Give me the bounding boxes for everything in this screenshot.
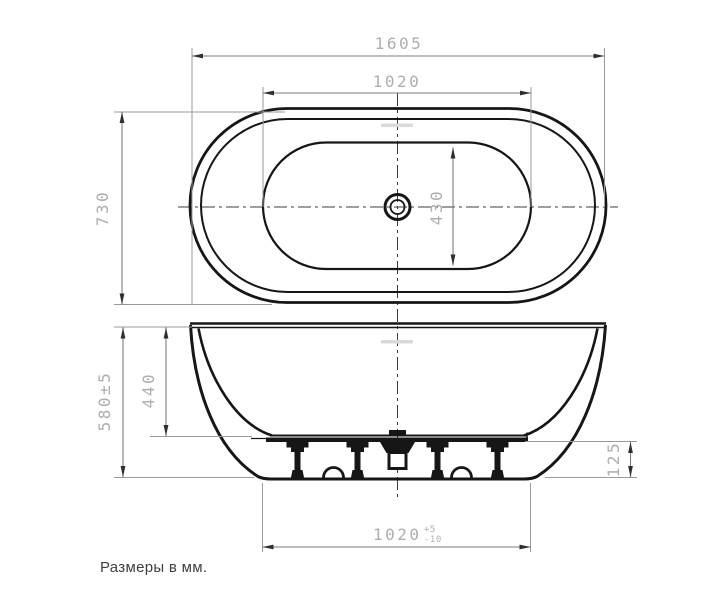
- basin-outline: [263, 143, 531, 270]
- foot: [287, 442, 309, 478]
- overflow-mark-side: [381, 340, 413, 344]
- bottom-bump-right: [452, 468, 472, 478]
- dim-base-length: 1020: [373, 525, 422, 544]
- overflow-mark-top: [381, 124, 413, 128]
- dim-overall-length: 1605: [375, 34, 424, 53]
- dim-overall-height: 580±5: [95, 371, 114, 432]
- dim-base-length-value: 1020: [373, 525, 422, 544]
- dim-overall-width: 730: [93, 190, 112, 226]
- dim-base-length-tol-plus: +5: [424, 525, 436, 535]
- dim-base-length-tol-minus: -10: [424, 535, 442, 545]
- side-inner-wall-right: [524, 329, 598, 436]
- dim-basin-width: 430: [427, 189, 446, 225]
- technical-drawing-canvas: 1605 1020 730 430 580±5 440 125 1020 +5 …: [0, 0, 721, 600]
- dim-inner-depth: 440: [139, 372, 158, 408]
- foot: [487, 442, 509, 478]
- bottom-bump-left: [324, 468, 344, 478]
- dim-rim-length: 1020: [373, 72, 422, 91]
- side-inner-wall-left: [199, 329, 273, 436]
- foot: [427, 442, 449, 478]
- bathtub-technical-drawing: 1605 1020 730 430 580±5 440 125 1020 +5 …: [0, 0, 721, 600]
- foot: [347, 442, 369, 478]
- side-view: [190, 324, 606, 480]
- dim-base-height: 125: [604, 441, 623, 477]
- frame-bar: [266, 438, 528, 443]
- units-note: Размеры в мм.: [100, 559, 207, 576]
